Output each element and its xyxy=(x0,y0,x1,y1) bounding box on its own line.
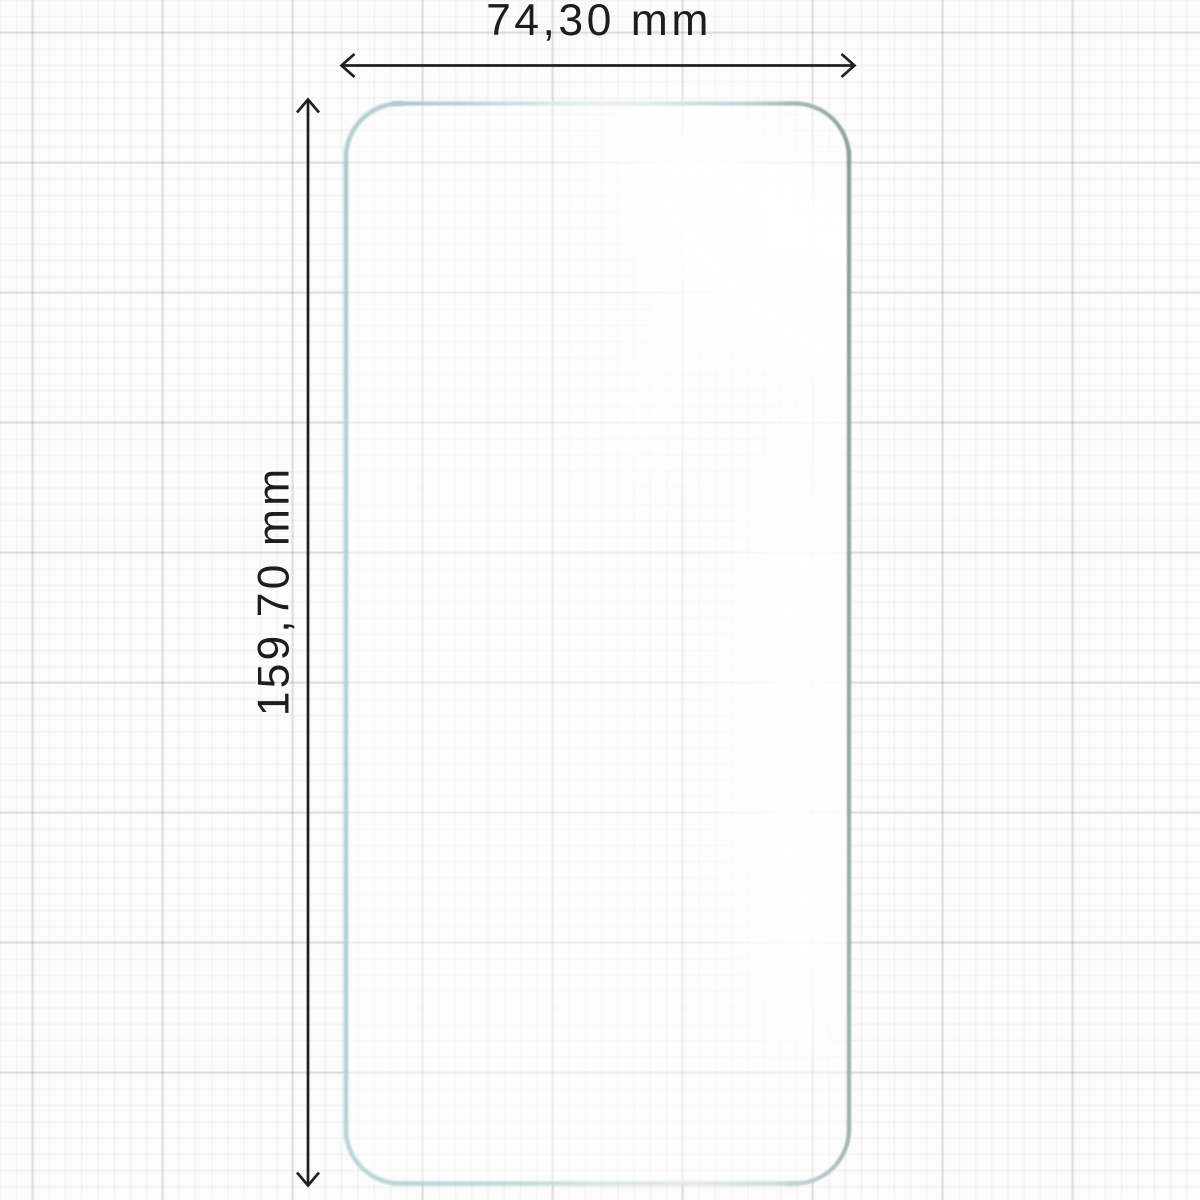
svg-text:74,30 mm: 74,30 mm xyxy=(486,0,712,45)
svg-text:159,70 mm: 159,70 mm xyxy=(250,466,299,717)
